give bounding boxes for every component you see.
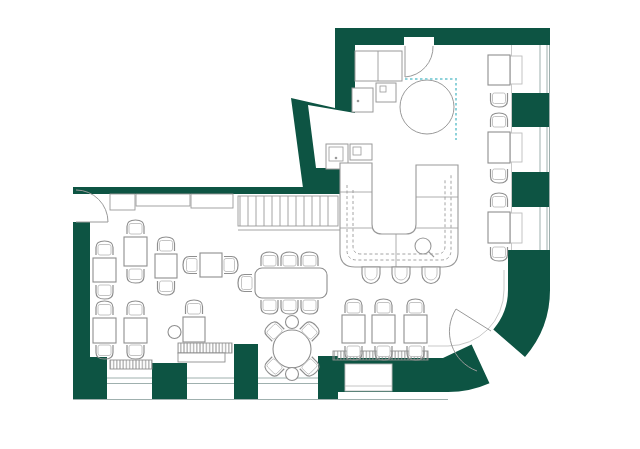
table xyxy=(404,315,427,343)
wall-top-bar xyxy=(335,28,550,45)
window-bottom-right-inset xyxy=(345,364,392,391)
bar-stool xyxy=(392,267,410,284)
bar-stool xyxy=(422,267,440,284)
wall-dining-top xyxy=(73,187,344,194)
round-stool xyxy=(286,368,299,381)
table xyxy=(200,253,222,277)
wall-corner-bottom-left xyxy=(73,357,107,400)
table xyxy=(124,237,147,266)
floor-plan-drawing xyxy=(0,0,640,449)
bench-wall-2 xyxy=(510,133,522,162)
table xyxy=(93,258,116,282)
bar-stool xyxy=(362,267,380,284)
kitchen-stove xyxy=(350,144,372,160)
round-stool xyxy=(168,326,181,339)
pillar-bottom-1 xyxy=(152,363,187,400)
communal-table xyxy=(255,268,327,298)
table xyxy=(372,315,395,343)
wall-table xyxy=(488,55,510,85)
table xyxy=(93,318,116,343)
round-stool xyxy=(286,316,299,329)
floor-plan-canvas xyxy=(0,0,640,449)
wall-table xyxy=(488,212,510,243)
pillar-bottom-2 xyxy=(234,344,258,400)
table xyxy=(342,315,365,343)
bench-1 xyxy=(110,360,152,369)
table xyxy=(155,254,177,278)
wall-table xyxy=(488,132,510,163)
pillar-right-1 xyxy=(512,93,550,127)
kitchen-unit-1 xyxy=(352,88,373,112)
table xyxy=(183,317,205,342)
table xyxy=(124,318,147,343)
kitchen-unit-2 xyxy=(376,83,396,102)
bench-wall-3 xyxy=(510,213,522,243)
storage-room xyxy=(355,51,402,81)
pillar-right-2 xyxy=(512,172,550,207)
round-table xyxy=(273,330,311,368)
bench-wall-1 xyxy=(510,56,522,84)
top-door-opening xyxy=(404,37,434,46)
bench-2 xyxy=(178,343,232,353)
